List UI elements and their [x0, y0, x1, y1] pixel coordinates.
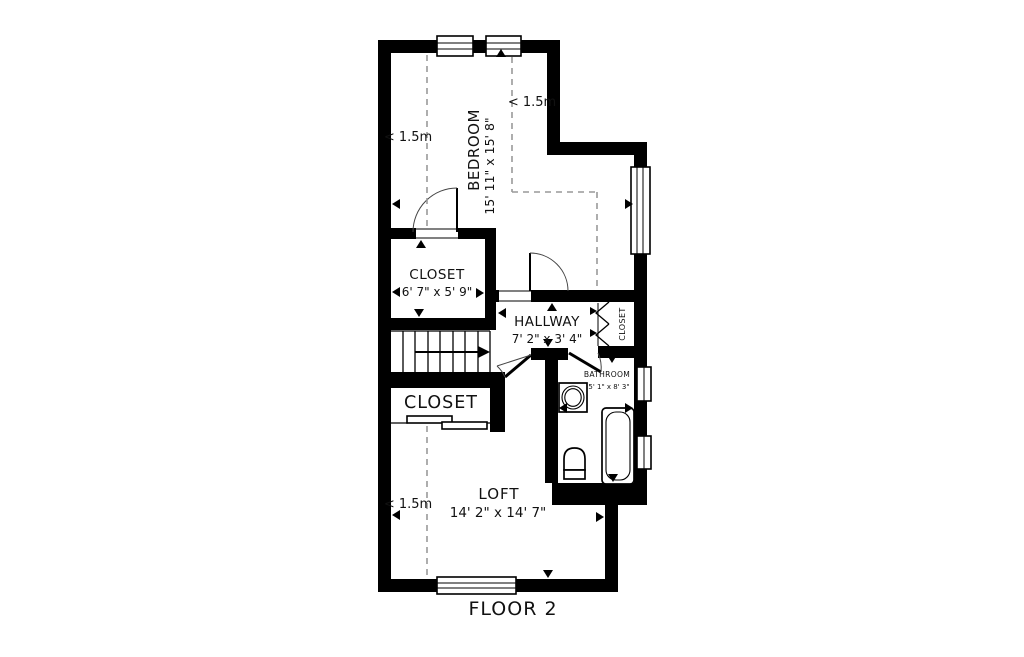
bedroom-window-top-left — [437, 36, 473, 56]
hall-closet-name-label: CLOSET — [618, 307, 627, 340]
bedroom-door — [413, 188, 457, 232]
bathtub-icon — [602, 408, 634, 484]
wall-loft-right — [605, 497, 618, 592]
upper-closet-name-label: CLOSET — [409, 267, 465, 283]
arrow-hall-closet-down — [607, 355, 617, 363]
toilet-icon — [564, 448, 585, 479]
bedroom-name-label: BEDROOM — [465, 109, 483, 191]
arrow-hallway-up — [547, 303, 557, 311]
stairs-arrow-head — [478, 346, 490, 358]
wall-bathroom-bottom — [552, 483, 647, 505]
hallway-bedroom-door — [530, 253, 568, 291]
wall-upper-closet-bottom — [391, 318, 496, 330]
staircase — [391, 331, 490, 372]
low-ceiling-label-bedroom-left: < 1.5m — [384, 130, 432, 145]
lower-closet-name-label: CLOSET — [404, 393, 478, 413]
floor-title: FLOOR 2 — [468, 598, 557, 620]
bathroom-dims-label: 5' 1" x 8' 3" — [588, 383, 629, 391]
bathroom-window-upper — [637, 367, 651, 401]
loft-window-bottom — [437, 577, 516, 594]
bedroom-dims-label: 15' 11" x 15' 8" — [482, 117, 497, 214]
bathroom-fixtures — [559, 383, 634, 484]
arrow-hallway-left — [498, 308, 506, 318]
hallway-dims-label: 7' 2" x 3' 4" — [512, 332, 583, 346]
arrow-loft-right — [596, 512, 604, 522]
wall-lower-closet-right — [490, 372, 505, 432]
low-ceiling-label-bedroom-top: < 1.5m — [508, 95, 556, 110]
bathroom-name-label: BATHROOM — [584, 370, 630, 379]
arrow-upper-closet-left — [392, 287, 400, 297]
floor-plan-page: BEDROOM 15' 11" x 15' 8" CLOSET 6' 7" x … — [0, 0, 1024, 657]
wall-upper-closet-right — [485, 228, 496, 330]
arrow-upper-closet-right — [476, 288, 484, 298]
arrow-upper-closet-up — [416, 240, 426, 248]
bedroom-window-right — [631, 167, 650, 254]
loft-dims-label: 14' 2" x 14' 7" — [450, 505, 547, 521]
arrow-bedroom-left — [392, 199, 400, 209]
wall-bathroom-left — [545, 348, 558, 483]
hall-closet-bifold-doors — [590, 302, 609, 346]
bathroom-window-lower — [637, 436, 651, 469]
upper-closet-dims-label: 6' 7" x 5' 9" — [402, 285, 473, 299]
floor-plan-drawing: BEDROOM 15' 11" x 15' 8" CLOSET 6' 7" x … — [0, 0, 1024, 657]
wall-hall-closet-bottom — [598, 346, 647, 358]
arrow-upper-closet-down — [414, 309, 424, 317]
lower-closet-sliding-doors — [391, 416, 490, 429]
labels: BEDROOM 15' 11" x 15' 8" CLOSET 6' 7" x … — [384, 95, 630, 620]
hallway-name-label: HALLWAY — [514, 314, 580, 330]
arrow-loft-down — [543, 570, 553, 578]
wall-lower-closet-top — [378, 372, 505, 388]
loft-name-label: LOFT — [478, 485, 519, 503]
wall-step — [547, 142, 647, 155]
low-ceiling-label-loft-left: < 1.5m — [384, 497, 432, 512]
